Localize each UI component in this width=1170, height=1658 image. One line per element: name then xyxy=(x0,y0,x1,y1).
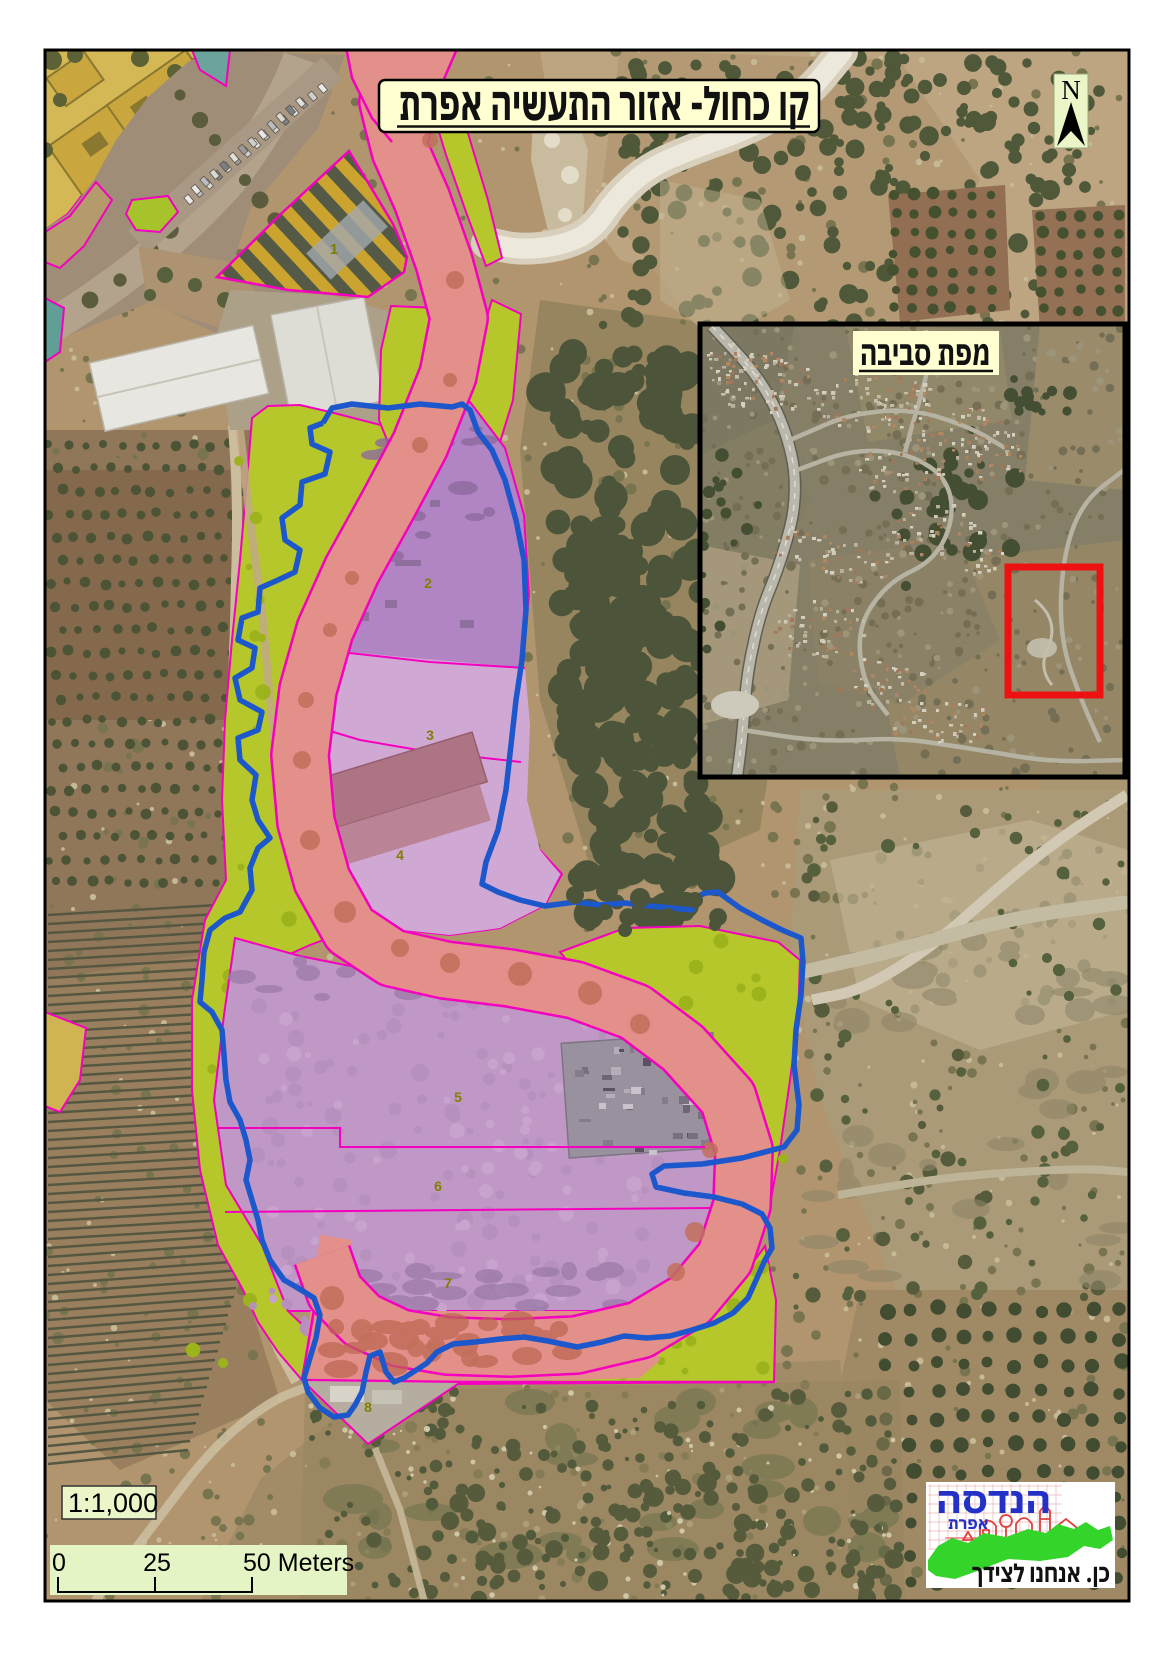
svg-text:6: 6 xyxy=(434,1178,442,1194)
svg-text:50 Meters: 50 Meters xyxy=(243,1549,354,1577)
svg-text:5: 5 xyxy=(454,1089,462,1105)
svg-text:1: 1 xyxy=(330,241,338,258)
svg-text:N: N xyxy=(1061,75,1081,105)
svg-text:7: 7 xyxy=(444,1275,452,1291)
svg-text:8: 8 xyxy=(364,1399,372,1415)
svg-text:1:1,000: 1:1,000 xyxy=(68,1488,158,1518)
svg-text:25: 25 xyxy=(143,1549,171,1577)
svg-text:2: 2 xyxy=(424,575,432,591)
svg-text:0: 0 xyxy=(52,1549,66,1577)
svg-text:4: 4 xyxy=(396,847,404,863)
svg-text:3: 3 xyxy=(426,727,434,743)
